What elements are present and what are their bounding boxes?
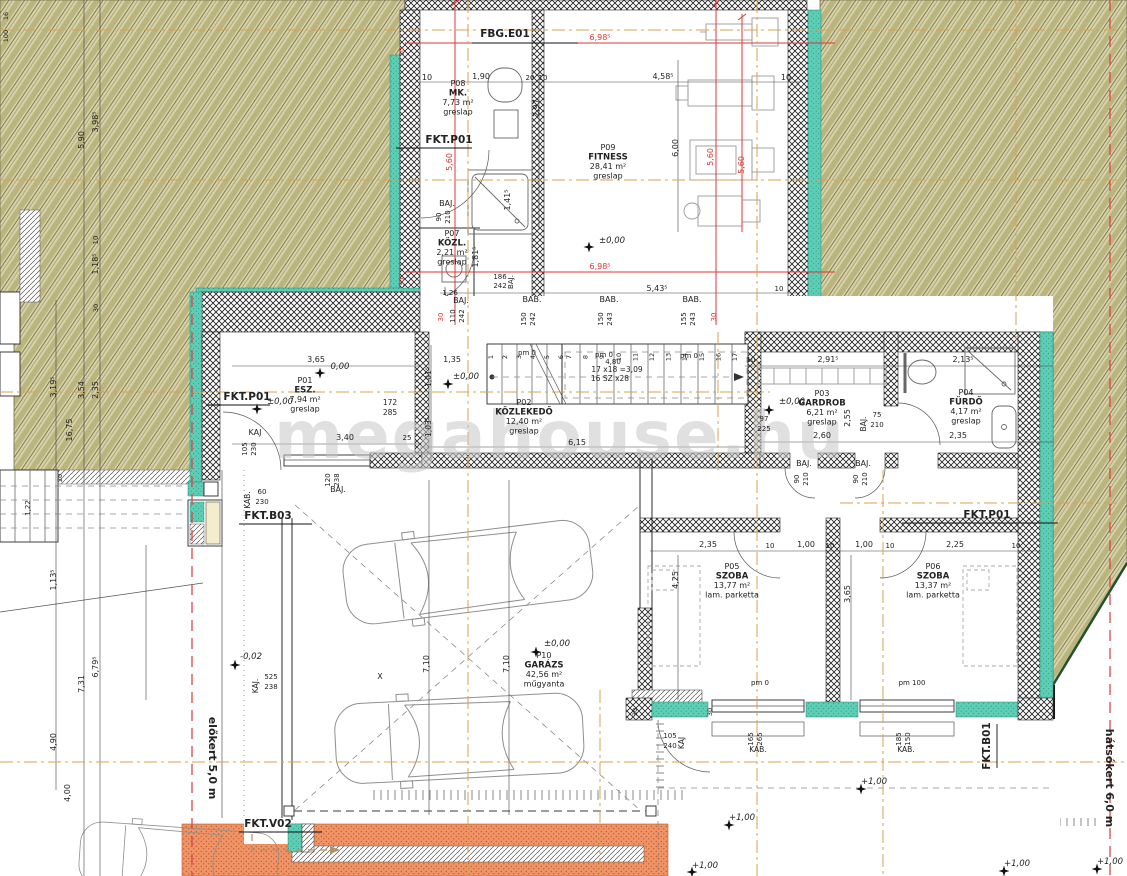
dim-label: 110: [449, 309, 457, 322]
room-floor: greslap: [951, 417, 980, 426]
level-value: +1,00: [1004, 859, 1030, 869]
dim-label: 186: [493, 273, 507, 281]
dim-label: pm 100: [899, 679, 926, 687]
dim-label: 30: [398, 278, 406, 287]
tread-number: 3: [515, 355, 523, 359]
ref-label: FKT.P01: [963, 509, 1010, 521]
level-value: ±0,00: [599, 236, 625, 246]
room-floor: greslap: [437, 258, 466, 267]
room-name: KÖZL.: [438, 238, 466, 249]
dim-label: BAJ.: [439, 199, 455, 208]
room-floor: greslap: [443, 108, 472, 117]
dim-label: KAJ: [249, 428, 262, 437]
room-area: 7,94 m²: [289, 395, 320, 404]
dim-label: 16: [2, 12, 10, 20]
tread-number: 8: [582, 355, 590, 359]
room-id: P09: [600, 143, 615, 152]
dim-label: 2,55: [843, 409, 852, 427]
tread-number: 5: [543, 355, 551, 359]
dim-label: 3,65: [843, 585, 852, 603]
room-id: P06: [925, 562, 940, 571]
dim-label: 1,35: [443, 355, 461, 364]
dim-label: 210: [802, 472, 810, 485]
room-floor: greslap: [807, 418, 836, 427]
dim-label: 5,90: [77, 131, 86, 149]
tread-number: 11: [631, 353, 639, 361]
dim-label: 1,00: [855, 540, 873, 549]
dim-label: pm 0: [751, 679, 769, 687]
dim-label: 3,65: [307, 355, 325, 364]
room-floor: lam. parketta: [705, 591, 759, 600]
level-value: ±0,00: [779, 397, 805, 407]
room-area: 4,17 m²: [950, 407, 981, 416]
garage-door-post: [646, 806, 656, 816]
dim-label: 10: [781, 73, 791, 82]
dim-label: 6,79⁵: [91, 656, 100, 677]
floor-plan-page: megahouse.hu előkert 5,0 m hátsókert 6,0…: [0, 0, 1127, 876]
dim-label: 185: [895, 732, 903, 745]
dim-label: 210: [861, 472, 869, 485]
dim-label: 16,75: [65, 419, 74, 442]
room-name: FÜRDŐ: [949, 397, 983, 408]
room-id: P05: [724, 562, 739, 571]
tread-number: 13: [665, 353, 673, 361]
dim-label: 10: [886, 542, 895, 550]
room-area: 13,77 m²: [714, 581, 750, 590]
room-name: SZOBA: [716, 572, 749, 582]
dim-label: 155: [680, 312, 688, 325]
tread-number: 6: [557, 355, 565, 359]
dim-label: 120: [324, 473, 332, 486]
dim-label: 10: [826, 542, 835, 550]
dim-label: 6,00: [671, 139, 680, 157]
tread-number: 2: [501, 355, 509, 359]
dim-label: 238: [264, 683, 277, 691]
dim-label: 20: [526, 74, 535, 82]
room-floor: greslap: [290, 405, 319, 414]
room-id: P07: [444, 229, 459, 238]
dim-label: 10: [422, 73, 432, 82]
room-area: 7,73 m²: [442, 98, 473, 107]
dim-label: 230: [250, 442, 258, 455]
room-id: P08: [450, 79, 465, 88]
dim-label: 10: [92, 236, 100, 245]
dim-label: 6,15: [568, 438, 586, 447]
tread-number: 7: [565, 355, 573, 359]
dim-label: 6,98⁵: [589, 262, 610, 271]
dim-label: 25: [403, 434, 412, 442]
dim-label: 10: [539, 74, 548, 82]
dim-label: 90: [435, 213, 443, 222]
dim-label: 17 x18 =3,09: [591, 365, 643, 374]
dim-label: 1,41⁵: [503, 189, 512, 210]
dim-label: 2,25: [946, 540, 964, 549]
room-area: 13,37 m²: [915, 581, 951, 590]
dim-label: 1,13⁵: [49, 569, 58, 590]
dim-label: 2,91⁵: [817, 355, 838, 364]
room-area: 42,56 m²: [526, 670, 562, 679]
room-id: P02: [516, 398, 531, 407]
dim-label: 10: [1012, 542, 1021, 550]
dim-label: 2,35: [91, 381, 100, 399]
dim-label: BAJ.: [796, 459, 812, 468]
dim-label: 2,13⁵: [952, 355, 973, 364]
dim-label: 1,22: [24, 500, 32, 516]
dim-label: BAJ.: [859, 417, 868, 432]
dim-label: 2,97: [532, 99, 541, 117]
tread-number: 9: [598, 355, 606, 359]
dim-label: 242: [529, 312, 537, 325]
dim-label: BAJ.: [507, 275, 515, 289]
dim-label: 100: [2, 30, 10, 42]
level-value: 0,00: [331, 362, 350, 372]
dim-label: BAJ.: [453, 296, 469, 305]
dim-label: 16 SZ x28: [591, 374, 629, 383]
dim-label: BAB.: [683, 295, 702, 304]
dim-label: 285: [383, 408, 398, 417]
dim-label: 150: [597, 312, 605, 325]
dim-label: X: [377, 672, 383, 681]
dim-label: 30: [706, 708, 714, 716]
dim-label: 10: [747, 356, 756, 364]
dim-label: 1,00: [797, 540, 815, 549]
dim-label: 225: [757, 425, 770, 433]
dim-label: 90: [793, 475, 801, 484]
dim-label: 2,35: [949, 431, 967, 440]
front-yard-label: előkert 5,0 m: [206, 717, 219, 800]
dim-label: 105: [241, 442, 249, 455]
dim-label: 10: [766, 542, 775, 550]
room-area: 12,40 m²: [506, 417, 542, 426]
room-name: SZOBA: [917, 572, 950, 582]
tread-number: 12: [648, 353, 656, 361]
level-value: ±0,00: [544, 639, 570, 649]
dim-label: 3,19⁵: [49, 376, 58, 397]
dim-label: 5,60: [706, 148, 715, 166]
room-floor: greslap: [509, 427, 538, 436]
dim-label: 4,00: [63, 784, 72, 802]
room-id: P01: [297, 376, 312, 385]
dim-label: 4,25: [671, 571, 680, 589]
rear-yard-label: hátsókert 6,0 m: [1103, 729, 1116, 827]
dim-label: 150: [904, 732, 912, 745]
ref-label: FBG.E01: [480, 28, 530, 40]
tread-number: 17: [731, 353, 739, 361]
dim-label: BAJ.: [855, 459, 871, 468]
dim-label: 4,58⁵: [652, 72, 673, 81]
dim-label: 10: [775, 285, 784, 293]
ref-label: FKT.V02: [244, 818, 292, 830]
room-id: P03: [814, 389, 829, 398]
room-area: 6,21 m²: [806, 408, 837, 417]
dim-label: KAB.: [749, 745, 766, 754]
dim-label: 1,81⁵: [471, 246, 480, 267]
dim-label: 242: [458, 309, 466, 322]
tread-number: 10: [615, 353, 623, 361]
dim-label: 3,40: [336, 433, 354, 442]
dim-label: 230: [255, 498, 268, 506]
dim-label: 105: [663, 732, 676, 740]
dim-label: 1,01⁵: [424, 367, 433, 387]
room-name: FITNESS: [588, 153, 628, 163]
dim-label: 4,90: [49, 733, 58, 751]
room-id: P04: [958, 388, 973, 397]
dim-label: 242: [493, 282, 506, 290]
dim-label: KAJ.: [251, 679, 260, 694]
dim-label: 525: [264, 673, 277, 681]
dim-label: 165: [747, 732, 755, 745]
dim-label: 5,43⁵: [646, 284, 667, 293]
dim-label: 1,90: [472, 72, 490, 81]
dim-label: BAB.: [523, 295, 542, 304]
dim-label: 240: [663, 742, 676, 750]
dim-label: KAJ: [677, 737, 686, 749]
dim-label: 210: [870, 421, 883, 429]
dim-label: 30: [631, 708, 639, 716]
dim-label: 210: [444, 210, 452, 223]
dim-label: 1,03⁵: [424, 417, 433, 437]
watermark: megahouse.hu: [274, 397, 846, 474]
room-name: ESZ.: [294, 386, 315, 396]
room-floor: lam. parketta: [906, 591, 960, 600]
dim-label: 7,31: [77, 675, 86, 693]
dim-label: 60: [258, 488, 267, 496]
dim-label: KAB.: [897, 745, 914, 754]
level-value: +1,00: [1097, 857, 1123, 867]
dim-label: 3,54: [77, 381, 86, 399]
dim-label: 30: [437, 313, 445, 322]
dim-label: 30: [92, 304, 100, 312]
dim-label: 7,10: [422, 655, 431, 673]
dim-label: 150: [520, 312, 528, 325]
room-name: MK.: [449, 89, 467, 99]
dim-label: 97: [760, 415, 769, 423]
dim-label: 6,98⁵: [589, 33, 610, 42]
ref-label: FKT.P01: [425, 134, 472, 146]
dim-label: 243: [689, 312, 697, 325]
dim-label: 90: [852, 475, 860, 484]
room-floor: műgyanta: [524, 680, 565, 689]
dim-label: 5,60: [445, 153, 454, 171]
tread-number: 14: [681, 353, 689, 361]
level-value: +1,00: [861, 777, 887, 787]
room-area: 28,41 m²: [590, 162, 626, 171]
dim-label: 75: [873, 411, 882, 419]
garage-door-post: [284, 806, 294, 816]
room-floor: greslap: [593, 172, 622, 181]
room-area: 2,21 m²: [436, 248, 467, 257]
ref-label: FKT.P01: [223, 391, 270, 403]
dim-label: 243: [606, 312, 614, 325]
tread-number: 16: [714, 353, 722, 361]
dim-label: 2,35: [699, 540, 717, 549]
dim-label: BAB.: [600, 295, 619, 304]
dim-label: 30: [398, 48, 406, 57]
tread-number: 15: [698, 353, 706, 361]
level-value: -0,02: [240, 652, 262, 662]
level-value: +1,00: [729, 813, 755, 823]
dim-label: 1,18⁵: [91, 253, 100, 274]
dim-label: 5,60: [737, 156, 746, 174]
dim-label: 172: [383, 398, 398, 407]
ref-label: FKT.B01: [981, 722, 993, 769]
floor-plan-drawing: megahouse.hu előkert 5,0 m hátsókert 6,0…: [0, 0, 1127, 876]
tread-number: 1: [487, 355, 495, 359]
dim-label: 265: [756, 732, 764, 745]
ref-label: FKT.B03: [244, 510, 291, 522]
dim-label: 7,10: [502, 655, 511, 673]
level-value: ±0,00: [267, 397, 293, 407]
dim-label: 20: [56, 474, 64, 482]
dim-label: 238: [333, 473, 341, 486]
dim-label: 2,60: [813, 431, 831, 440]
room-name: GARÁZS: [525, 659, 564, 671]
room-name: KÖZLEKEDŐ: [495, 407, 553, 418]
level-value: +1,00: [692, 861, 718, 871]
level-value: ±0,00: [453, 372, 479, 382]
dim-label: KAB.: [243, 491, 252, 508]
dim-label: 3,98⁵: [91, 111, 100, 132]
tread-number: 4: [529, 355, 537, 359]
dim-label: 30: [710, 313, 718, 322]
room-name: GARDROB: [798, 399, 845, 409]
